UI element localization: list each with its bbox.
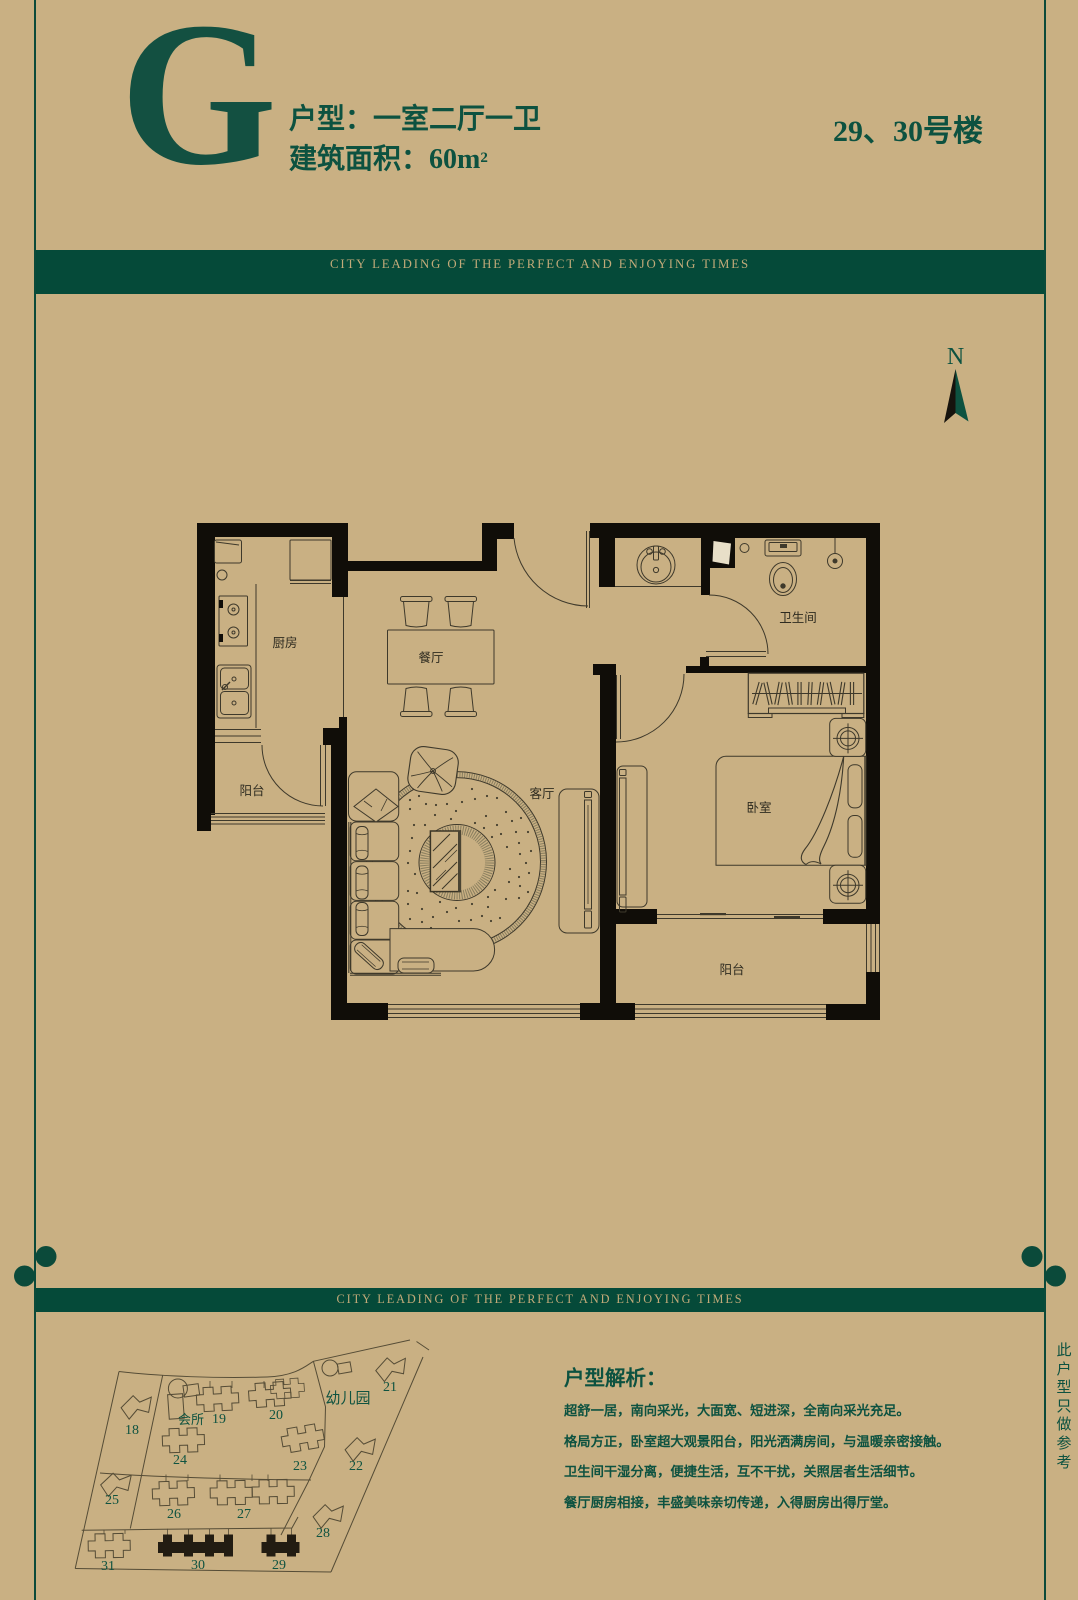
svg-text:会所: 会所 [178,1412,204,1427]
svg-text:卫生间: 卫生间 [779,611,817,625]
svg-text:23: 23 [293,1459,307,1474]
svg-text:客厅: 客厅 [529,786,554,801]
svg-text:31: 31 [101,1559,115,1574]
svg-text:20: 20 [269,1408,283,1423]
svg-text:18: 18 [125,1423,139,1438]
svg-text:厨房: 厨房 [272,635,297,650]
svg-text:26: 26 [167,1507,181,1522]
svg-text:幼儿园: 幼儿园 [325,1390,370,1407]
svg-text:阳台: 阳台 [719,962,744,977]
svg-text:19: 19 [212,1412,226,1427]
svg-text:29: 29 [272,1558,286,1573]
svg-text:餐厅: 餐厅 [418,650,443,665]
svg-text:24: 24 [173,1453,187,1468]
svg-text:30: 30 [191,1558,205,1573]
svg-text:卧室: 卧室 [746,800,771,815]
svg-text:21: 21 [383,1380,397,1395]
svg-text:阳台: 阳台 [239,783,264,798]
svg-text:22: 22 [349,1459,363,1474]
svg-text:25: 25 [105,1493,119,1508]
svg-text:28: 28 [316,1526,330,1541]
svg-text:N: N [947,344,964,370]
svg-text:27: 27 [237,1507,251,1522]
